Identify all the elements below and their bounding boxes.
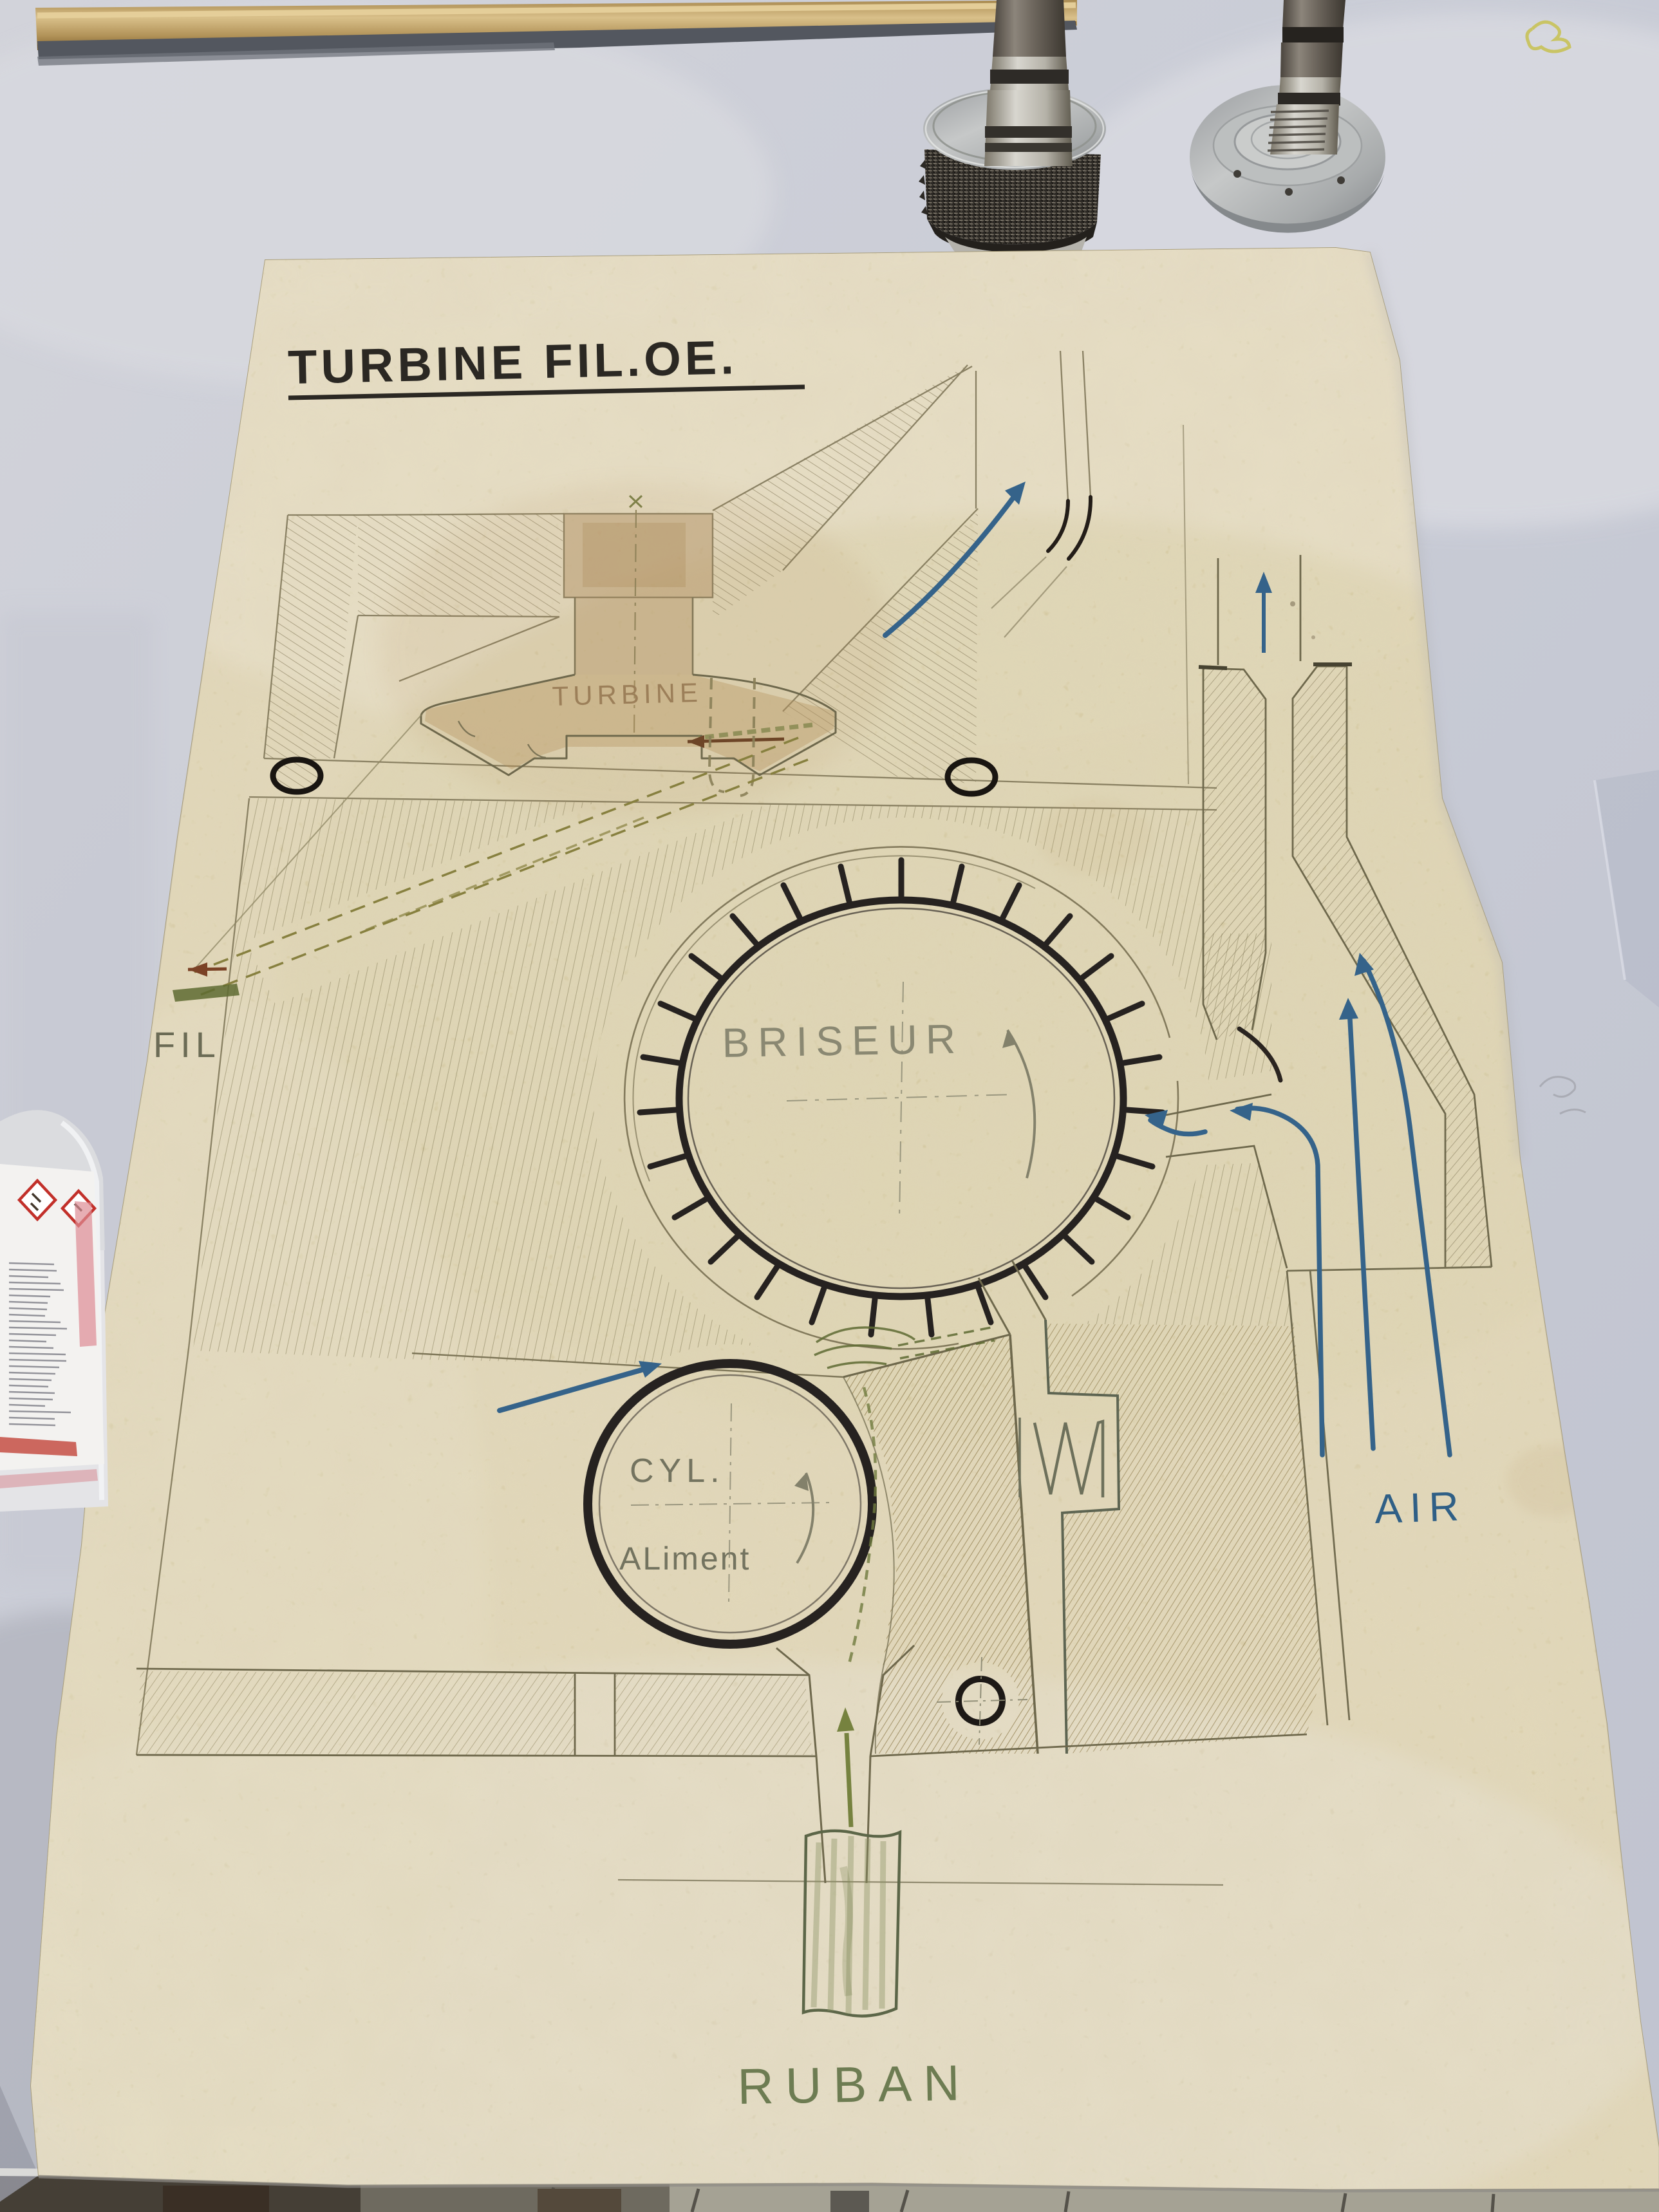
svg-text:TURBINE: TURBINE [552, 677, 703, 711]
svg-text:AIR: AIR [1374, 1483, 1467, 1532]
svg-text:ALiment: ALiment [619, 1541, 751, 1577]
svg-text:FIL: FIL [153, 1024, 221, 1065]
svg-text:CYL.: CYL. [630, 1452, 725, 1490]
svg-text:BRISEUR: BRISEUR [722, 1015, 964, 1066]
svg-text:TURBINE FIL.OE.: TURBINE FIL.OE. [287, 330, 738, 394]
svg-text:RUBAN: RUBAN [737, 2054, 972, 2115]
